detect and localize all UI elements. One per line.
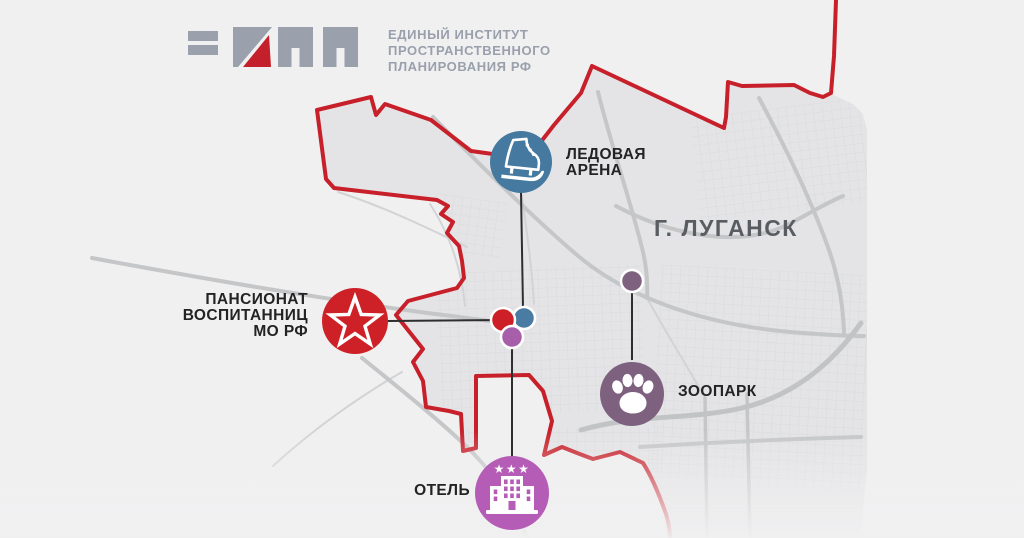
org-name: ЕДИНЫЙ ИНСТИТУТ ПРОСТРАНСТВЕННОГО ПЛАНИР… [388, 27, 551, 75]
label-zoo: ЗООПАРК [678, 384, 757, 400]
marker-zoo [600, 362, 664, 426]
label-pansionat: ПАНСИОНАТ ВОСПИТАННИЦ МО РФ [176, 292, 308, 340]
marker-ice-arena [490, 131, 552, 193]
org-logo-mark [188, 27, 363, 67]
hotel-building-icon: ★★★ [475, 456, 549, 530]
org-name-line: ПЛАНИРОВАНИЯ РФ [388, 59, 551, 75]
paw-icon [600, 362, 664, 426]
dot-hotel [501, 326, 523, 348]
infographic-canvas: ЕДИНЫЙ ИНСТИТУТ ПРОСТРАНСТВЕННОГО ПЛАНИР… [0, 0, 1024, 538]
org-name-line: ПРОСТРАНСТВЕННОГО [388, 43, 551, 59]
marker-pansionat [322, 288, 388, 354]
label-ice-arena: ЛЕДОВАЯ АРЕНА [566, 147, 646, 179]
org-name-line: ЕДИНЫЙ ИНСТИТУТ [388, 27, 551, 43]
svg-text:★★★: ★★★ [494, 462, 531, 476]
marker-hotel: ★★★ [475, 456, 549, 530]
army-star-icon [322, 288, 388, 354]
ice-skate-icon [490, 131, 552, 193]
city-name-label: Г. ЛУГАНСК [654, 215, 798, 242]
label-hotel: ОТЕЛЬ [370, 483, 470, 499]
dot-zoo [621, 270, 643, 292]
